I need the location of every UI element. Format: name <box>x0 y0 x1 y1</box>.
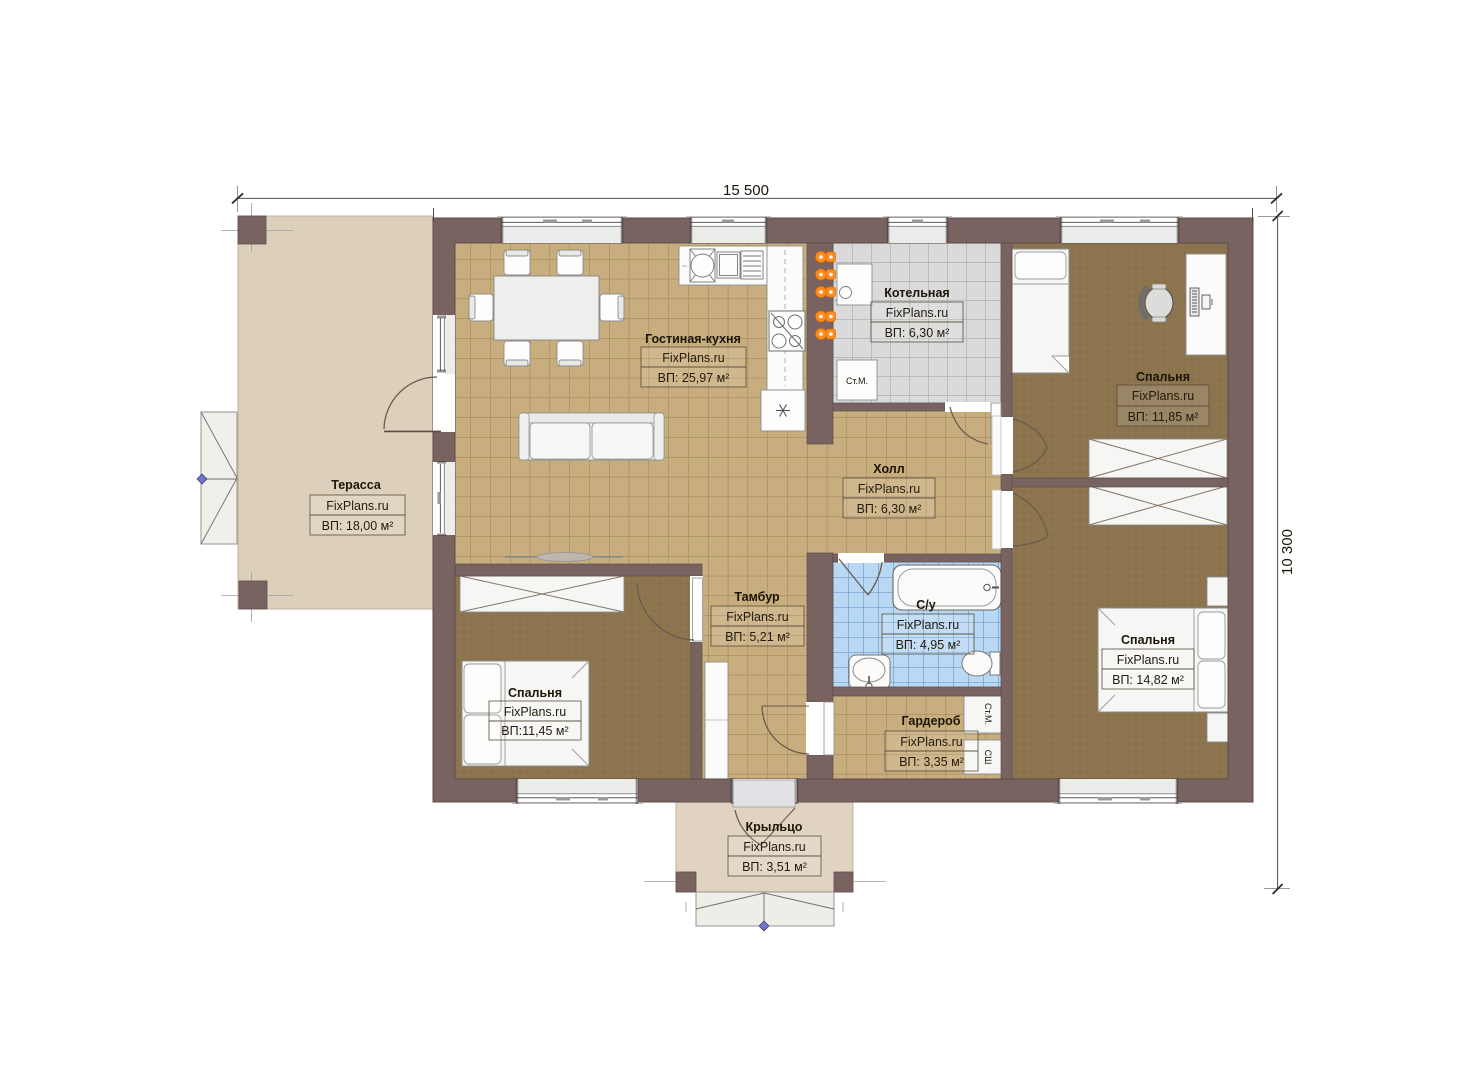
svg-text:С/у: С/у <box>916 598 936 612</box>
svg-text:ВП: 4,95 м²: ВП: 4,95 м² <box>896 638 961 652</box>
svg-text:15 500: 15 500 <box>723 182 769 199</box>
svg-text:СШ: СШ <box>983 750 993 765</box>
svg-text:10 300: 10 300 <box>1279 529 1296 575</box>
svg-text:Спальня: Спальня <box>1121 633 1175 647</box>
svg-text:ВП: 14,82 м²: ВП: 14,82 м² <box>1112 673 1184 687</box>
svg-text:FixPlans.ru: FixPlans.ru <box>326 499 389 513</box>
svg-text:ВП: 6,30 м²: ВП: 6,30 м² <box>885 326 950 340</box>
svg-text:FixPlans.ru: FixPlans.ru <box>900 735 963 749</box>
svg-text:FixPlans.ru: FixPlans.ru <box>1132 389 1195 403</box>
svg-text:FixPlans.ru: FixPlans.ru <box>726 610 789 624</box>
svg-text:FixPlans.ru: FixPlans.ru <box>743 840 806 854</box>
svg-text:Котельная: Котельная <box>884 286 949 300</box>
svg-text:ВП: 5,21 м²: ВП: 5,21 м² <box>725 630 790 644</box>
svg-text:ВП: 3,35 м²: ВП: 3,35 м² <box>899 755 964 769</box>
svg-text:Тамбур: Тамбур <box>734 590 780 604</box>
svg-text:Крыльцо: Крыльцо <box>746 820 803 834</box>
svg-text:FixPlans.ru: FixPlans.ru <box>897 618 960 632</box>
svg-text:FixPlans.ru: FixPlans.ru <box>1117 653 1180 667</box>
svg-text:Гардероб: Гардероб <box>901 714 960 728</box>
svg-text:FixPlans.ru: FixPlans.ru <box>504 705 567 719</box>
svg-text:ВП: 6,30 м²: ВП: 6,30 м² <box>857 502 922 516</box>
svg-text:ВП: 18,00 м²: ВП: 18,00 м² <box>322 519 394 533</box>
svg-text:Ст.М.: Ст.М. <box>983 703 993 725</box>
svg-text:Гостиная-кухня: Гостиная-кухня <box>645 332 741 346</box>
svg-text:FixPlans.ru: FixPlans.ru <box>662 351 725 365</box>
svg-text:Ст.М.: Ст.М. <box>846 376 868 386</box>
svg-text:FixPlans.ru: FixPlans.ru <box>886 306 949 320</box>
svg-text:Спальня: Спальня <box>1136 370 1190 384</box>
svg-text:Холл: Холл <box>873 462 904 476</box>
svg-text:Спальня: Спальня <box>508 686 562 700</box>
svg-text:FixPlans.ru: FixPlans.ru <box>858 482 921 496</box>
svg-text:ВП: 11,85 м²: ВП: 11,85 м² <box>1128 410 1199 424</box>
svg-text:Терасса: Терасса <box>331 478 382 492</box>
svg-text:ВП:11,45 м²: ВП:11,45 м² <box>501 724 568 738</box>
svg-text:ВП: 25,97 м²: ВП: 25,97 м² <box>658 371 730 385</box>
svg-text:ВП: 3,51 м²: ВП: 3,51 м² <box>742 860 807 874</box>
